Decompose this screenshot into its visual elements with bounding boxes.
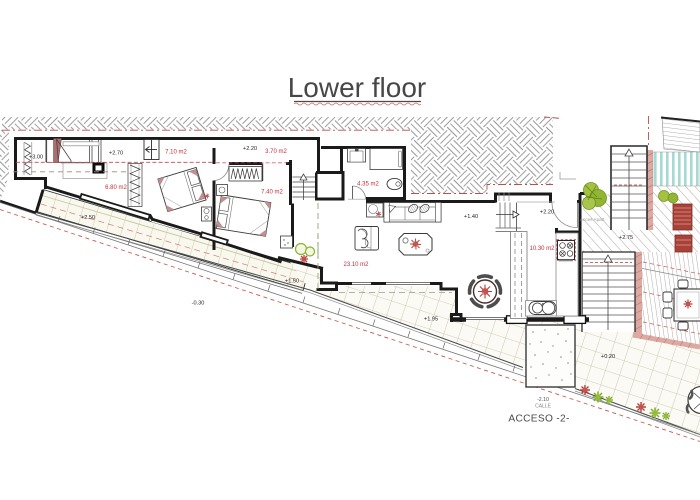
svg-text:10.30 m2: 10.30 m2 (529, 246, 555, 252)
svg-text:7.10 m2: 7.10 m2 (165, 150, 187, 156)
svg-text:+2.20: +2.20 (243, 146, 257, 152)
svg-text:+3.00: +3.00 (29, 155, 43, 161)
svg-text:+1.40: +1.40 (464, 214, 478, 220)
svg-text:7.40 m2: 7.40 m2 (261, 190, 283, 196)
svg-text:6.80 m2: 6.80 m2 (105, 185, 127, 191)
svg-text:CALLE: CALLE (535, 404, 552, 410)
svg-text:+2.75: +2.75 (619, 235, 633, 241)
svg-text:+1.95: +1.95 (424, 317, 438, 323)
svg-text:+2.20: +2.20 (540, 210, 554, 216)
svg-text:+0.20: +0.20 (601, 354, 615, 360)
svg-text:+2.50: +2.50 (81, 215, 95, 221)
svg-text:+2.70: +2.70 (109, 151, 123, 157)
svg-text:-2.10: -2.10 (537, 397, 549, 403)
svg-text:4.35 m2: 4.35 m2 (357, 182, 379, 188)
svg-text:23.10 m2: 23.10 m2 (343, 262, 369, 268)
svg-text:Acces Apart: Acces Apart (580, 217, 605, 222)
svg-text:3.70 m2: 3.70 m2 (265, 149, 287, 155)
svg-text:-0.30: -0.30 (192, 301, 205, 307)
svg-text:Lower floor: Lower floor (288, 72, 427, 103)
svg-text:ACCESO -2-: ACCESO -2- (508, 414, 569, 425)
svg-text:+1.50: +1.50 (285, 279, 299, 285)
